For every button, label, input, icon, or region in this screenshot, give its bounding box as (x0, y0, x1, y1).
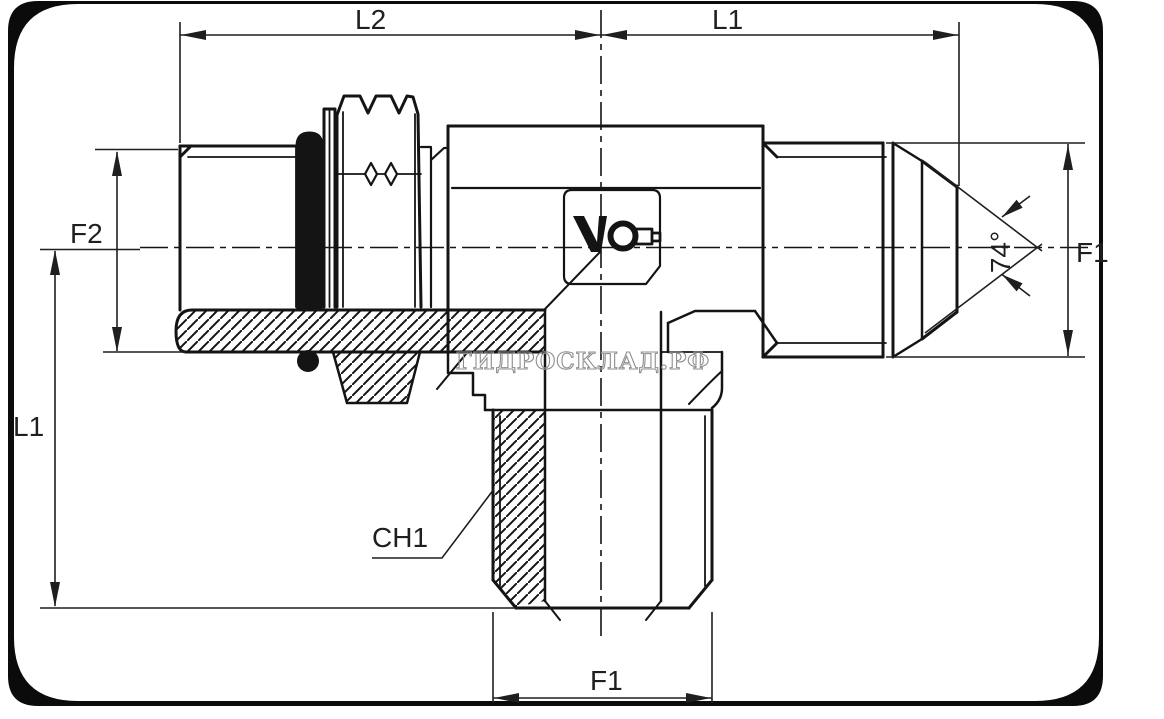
label-ch1: CH1 (372, 522, 428, 553)
fitting-technical-drawing: L2 L1 F2 L1 F1 F1 CH1 74° ГИДРОСКЛАД.РФ (0, 0, 1164, 719)
dimension-l1-top (601, 22, 959, 186)
watermark-text: ГИДРОСКЛАД.РФ (456, 348, 710, 375)
label-l2: L2 (355, 4, 386, 35)
dimension-l1-left (40, 250, 518, 609)
dimension-f2 (95, 150, 185, 353)
left-port-locknut (337, 96, 448, 307)
label-f1-bottom: F1 (590, 665, 623, 696)
logo-letter-v (573, 216, 607, 252)
label-cone-angle: 74° (985, 231, 1016, 273)
o-ring-section (297, 350, 319, 372)
label-f1-right: F1 (1076, 237, 1109, 268)
left-port-thread (180, 146, 296, 310)
logo-ring-icon (611, 224, 636, 249)
label-l1-left: L1 (13, 411, 44, 442)
right-port-jic (763, 143, 957, 357)
logo-tab (636, 229, 660, 244)
label-l1-top: L1 (712, 4, 743, 35)
product-drawing-image: L2 L1 F2 L1 F1 F1 CH1 74° ГИДРОСКЛАД.РФ (0, 0, 1164, 719)
left-port-seal (297, 133, 322, 307)
left-port-washer (324, 109, 335, 307)
label-f2: F2 (70, 218, 103, 249)
brand-logo (573, 216, 660, 252)
